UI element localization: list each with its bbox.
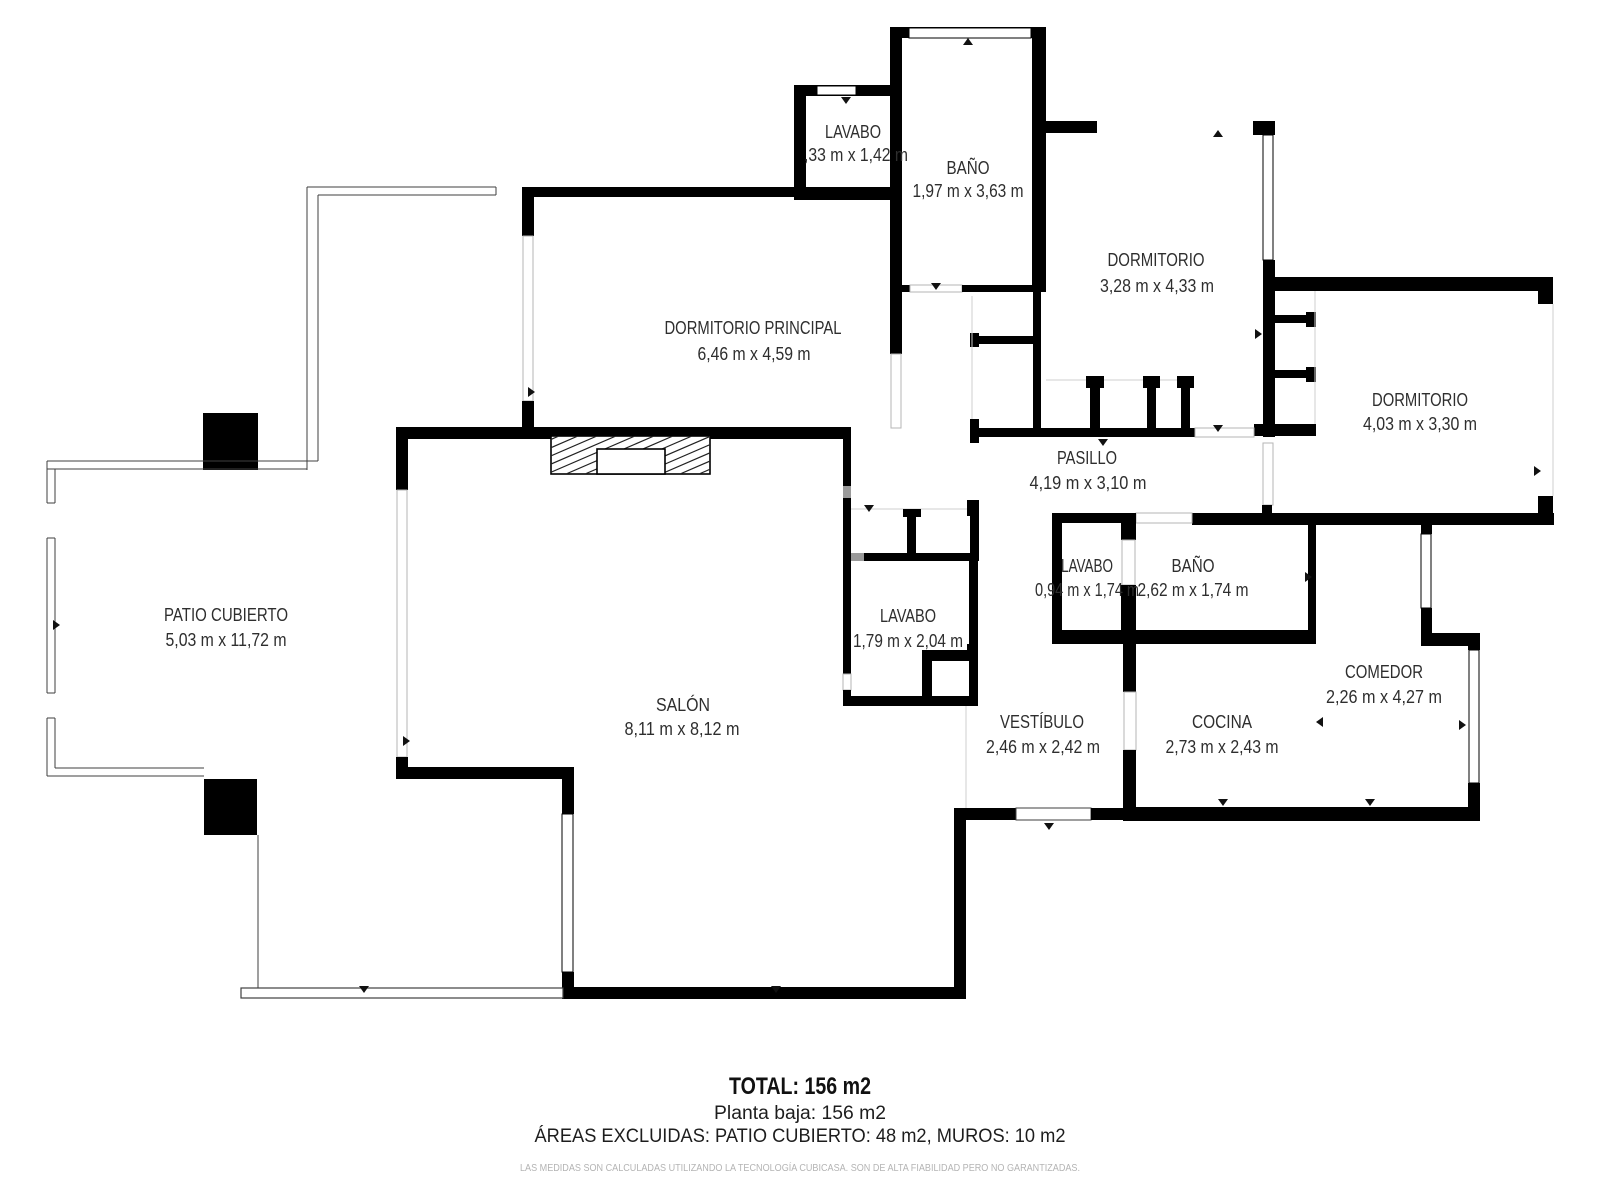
svg-text:BAÑO: BAÑO — [947, 157, 990, 178]
svg-text:LAVABO: LAVABO — [1061, 555, 1113, 576]
svg-text:DORMITORIO: DORMITORIO — [1108, 249, 1205, 270]
svg-text:,33 m x 1,42 m: ,33 m x 1,42 m — [804, 144, 908, 165]
svg-text:4,19 m x 3,10 m: 4,19 m x 3,10 m — [1030, 472, 1147, 493]
svg-text:LAVABO: LAVABO — [880, 605, 936, 626]
svg-text:2,62 m x 1,74 m: 2,62 m x 1,74 m — [1138, 579, 1249, 600]
svg-text:BAÑO: BAÑO — [1172, 555, 1215, 576]
svg-text:ÁREAS EXCLUIDAS: PATIO CUBIERT: ÁREAS EXCLUIDAS: PATIO CUBIERTO: 48 m2, … — [535, 1126, 1066, 1147]
svg-text:PASILLO: PASILLO — [1057, 447, 1117, 468]
svg-text:VESTÍBULO: VESTÍBULO — [1000, 711, 1084, 732]
svg-text:LAVABO: LAVABO — [825, 121, 881, 142]
svg-text:1,97 m x 3,63 m: 1,97 m x 3,63 m — [913, 180, 1024, 201]
svg-text:DORMITORIO: DORMITORIO — [1372, 389, 1468, 410]
svg-text:TOTAL: 156 m2: TOTAL: 156 m2 — [729, 1073, 871, 1100]
svg-text:2,46 m x 2,42 m: 2,46 m x 2,42 m — [986, 736, 1100, 757]
svg-text:Planta baja: 156 m2: Planta baja: 156 m2 — [714, 1103, 886, 1124]
svg-text:8,11 m x 8,12 m: 8,11 m x 8,12 m — [625, 718, 740, 739]
svg-text:3,28 m x 4,33 m: 3,28 m x 4,33 m — [1100, 275, 1214, 296]
svg-text:2,73 m x 2,43 m: 2,73 m x 2,43 m — [1166, 736, 1279, 757]
svg-text:1,79 m x 2,04 m: 1,79 m x 2,04 m — [853, 630, 963, 651]
svg-text:6,46 m x 4,59 m: 6,46 m x 4,59 m — [698, 343, 811, 364]
svg-text:COCINA: COCINA — [1192, 711, 1253, 732]
svg-text:DORMITORIO PRINCIPAL: DORMITORIO PRINCIPAL — [665, 317, 842, 338]
svg-text:COMEDOR: COMEDOR — [1345, 661, 1423, 682]
svg-text:SALÓN: SALÓN — [656, 694, 710, 715]
svg-text:5,03 m x 11,72 m: 5,03 m x 11,72 m — [166, 629, 287, 650]
svg-text:LAS MEDIDAS SON CALCULADAS UTI: LAS MEDIDAS SON CALCULADAS UTILIZANDO LA… — [520, 1161, 1080, 1174]
svg-text:PATIO CUBIERTO: PATIO CUBIERTO — [164, 604, 288, 625]
svg-text:2,26 m x 4,27 m: 2,26 m x 4,27 m — [1326, 686, 1442, 707]
svg-text:4,03 m x 3,30 m: 4,03 m x 3,30 m — [1363, 413, 1477, 434]
svg-text:0,94 m x 1,74 m: 0,94 m x 1,74 m — [1035, 579, 1139, 600]
